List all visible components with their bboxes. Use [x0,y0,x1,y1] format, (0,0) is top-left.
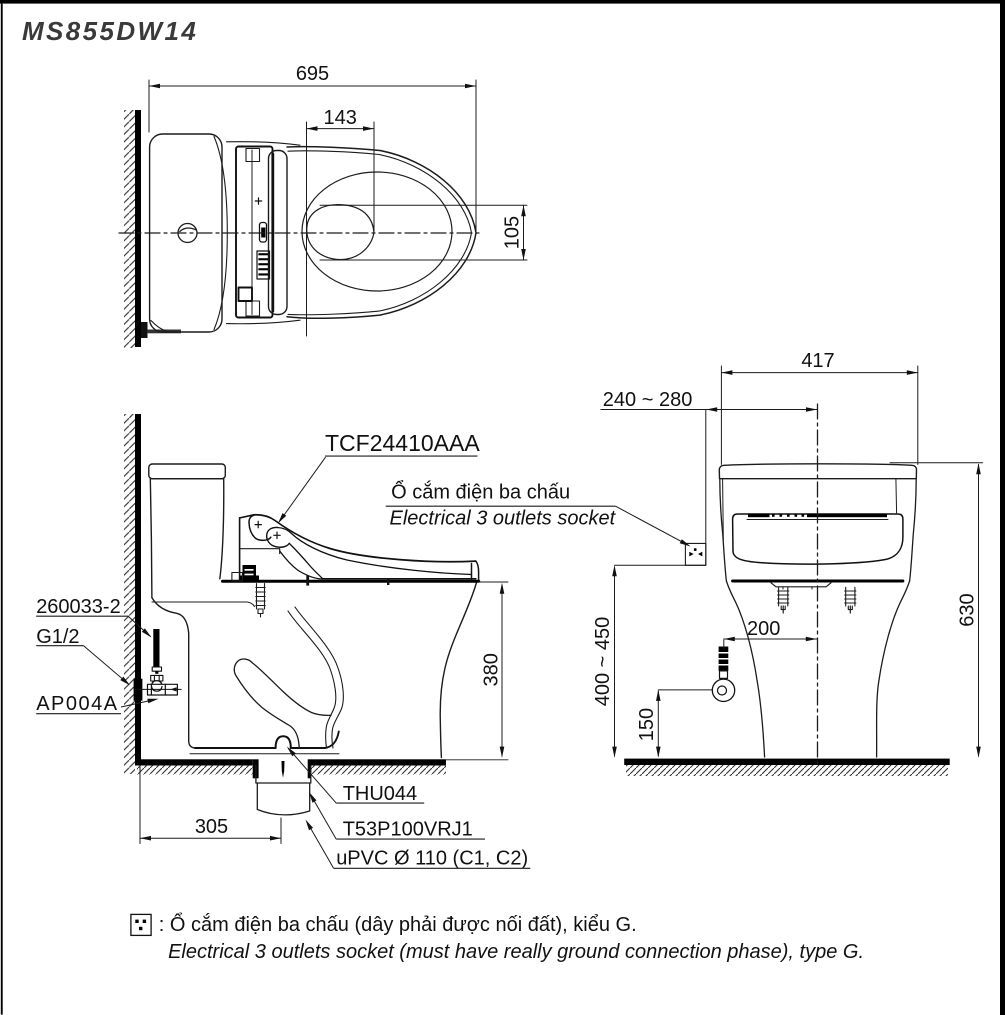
svg-text:400 ~ 450: 400 ~ 450 [592,617,614,707]
svg-text:305: 305 [195,816,228,838]
svg-text:240 ~ 280: 240 ~ 280 [603,389,693,411]
svg-text:105: 105 [502,216,524,249]
svg-text:200: 200 [747,618,780,640]
svg-text:260033-2: 260033-2 [36,596,121,618]
svg-text:143: 143 [324,107,357,129]
svg-text:uPVC Ø 110 (C1, C2): uPVC Ø 110 (C1, C2) [336,848,528,870]
svg-text:695: 695 [296,63,329,85]
svg-text:TCF24410AAA: TCF24410AAA [325,430,480,456]
svg-text:630: 630 [957,593,979,626]
svg-text:Electrical 3 outlets socket: Electrical 3 outlets socket [390,508,617,530]
svg-text:G1/2: G1/2 [36,626,79,648]
svg-text:THU044: THU044 [343,783,417,805]
svg-text:380: 380 [481,653,503,686]
svg-text:T53P100VRJ1: T53P100VRJ1 [343,819,473,841]
svg-text:MS855DW14: MS855DW14 [22,16,198,46]
svg-text:150: 150 [636,708,658,741]
svg-text:Ổ cắm điện ba chấu: Ổ cắm điện ba chấu [391,480,570,504]
svg-text:: Ổ cắm điện ba chấu (dây phải: : Ổ cắm điện ba chấu (dây phải được nối … [159,912,637,936]
svg-text:Electrical 3 outlets socket (m: Electrical 3 outlets socket (must have r… [168,941,864,963]
svg-text:417: 417 [801,350,834,372]
svg-text:AP004A: AP004A [36,693,118,715]
